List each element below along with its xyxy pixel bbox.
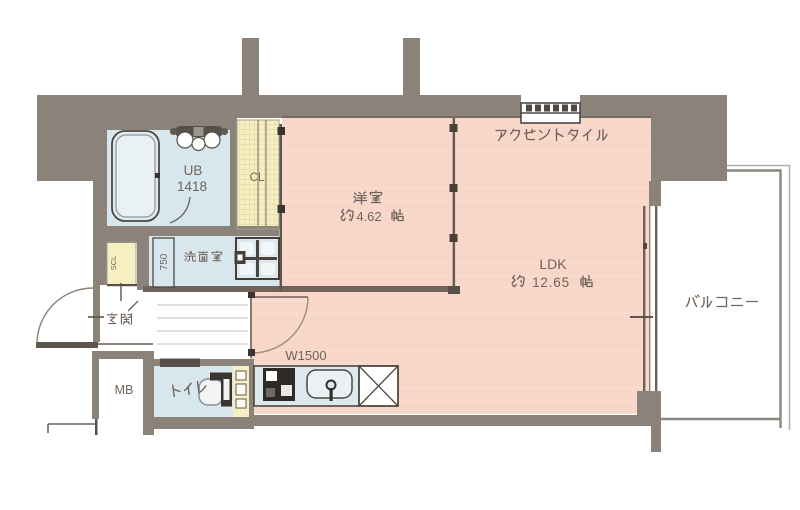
svg-text:750: 750 <box>159 253 170 270</box>
svg-text:12.65: 12.65 <box>532 275 570 290</box>
svg-text:W1500: W1500 <box>285 348 326 363</box>
svg-text:LDK: LDK <box>539 256 567 272</box>
svg-text:1418: 1418 <box>177 179 207 194</box>
svg-text:MB: MB <box>115 383 134 397</box>
svg-text:4.62: 4.62 <box>356 209 381 224</box>
svg-text:UB: UB <box>184 163 203 178</box>
svg-text:SCL: SCL <box>109 256 118 271</box>
svg-text:CL: CL <box>250 172 265 184</box>
